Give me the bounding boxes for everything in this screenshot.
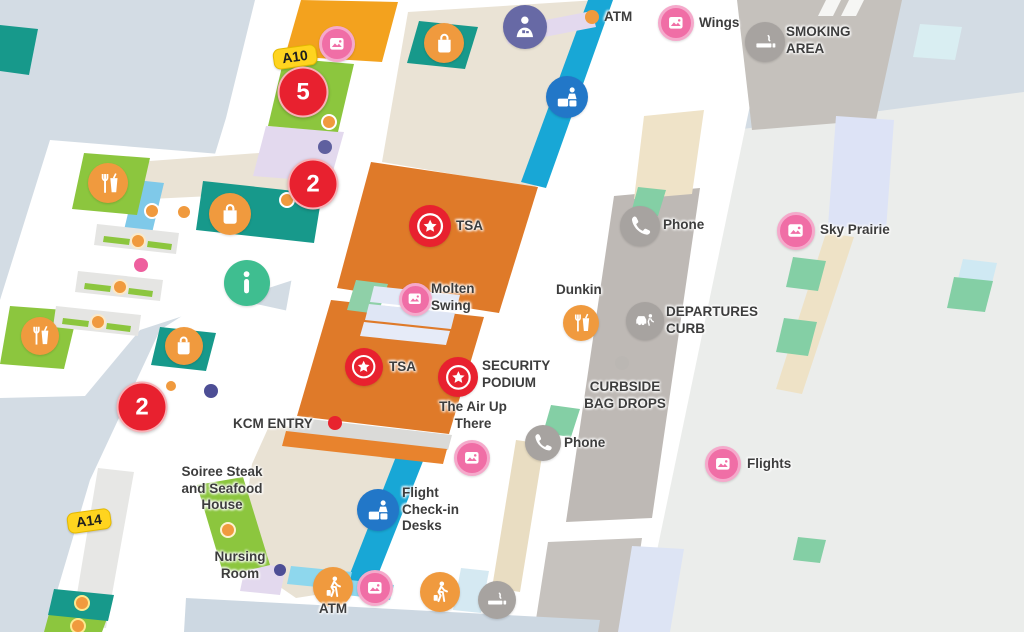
- art-photo-icon[interactable]: [319, 26, 355, 62]
- map-dot: [318, 140, 332, 154]
- map-dot: [585, 10, 599, 24]
- map-label-atm-bottom: ATM: [319, 601, 347, 618]
- tsa-checkpoint-icon[interactable]: [438, 357, 478, 397]
- tsa-checkpoint-icon[interactable]: [345, 348, 383, 386]
- map-label-flight-check-in-desks: FlightCheck-inDesks: [402, 485, 459, 535]
- poi-count-badge[interactable]: 2: [288, 159, 339, 210]
- map-label-atm-top: ATM: [604, 9, 632, 26]
- map-dot: [164, 379, 178, 393]
- map-dot: [134, 258, 148, 272]
- map-label-kcm-entry: KCM ENTRY: [233, 416, 313, 433]
- dining-icon[interactable]: [88, 163, 128, 203]
- map-label-nursing-room: NursingRoom: [214, 549, 265, 582]
- smoking-icon[interactable]: [478, 581, 516, 619]
- map-dot: [144, 203, 160, 219]
- poi-count-badge[interactable]: 2: [117, 382, 168, 433]
- map-dot: [204, 384, 218, 398]
- map-dot: [90, 314, 106, 330]
- phone-icon[interactable]: [620, 206, 660, 246]
- map-dot: [112, 279, 128, 295]
- map-label-smoking-area: SMOKINGAREA: [786, 24, 851, 57]
- art-photo-icon[interactable]: [454, 440, 490, 476]
- shopping-icon[interactable]: [424, 23, 464, 63]
- map-dot: [70, 618, 86, 632]
- map-label-sky-prairie: Sky Prairie: [820, 222, 890, 239]
- tsa-checkpoint-icon[interactable]: [409, 205, 451, 247]
- map-dot: [130, 233, 146, 249]
- map-label-wings: Wings: [699, 15, 739, 32]
- map-label-phone-upper: Phone: [663, 217, 704, 234]
- map-dot: [274, 564, 286, 576]
- checkin-desk-icon[interactable]: [546, 76, 588, 118]
- map-label-flights: Flights: [747, 456, 791, 473]
- art-photo-icon[interactable]: [705, 446, 741, 482]
- shopping-icon[interactable]: [165, 327, 203, 365]
- phone-icon[interactable]: [525, 425, 561, 461]
- map-dot: [74, 595, 90, 611]
- art-photo-icon[interactable]: [658, 5, 694, 41]
- map-label-tsa-1: TSA: [456, 218, 483, 235]
- map-label-departures-curb: DEPARTURESCURB: [666, 304, 758, 337]
- map-label-security-podium: SECURITYPODIUM: [482, 358, 550, 391]
- map-dot: [176, 204, 192, 220]
- shopping-icon[interactable]: [209, 193, 251, 235]
- map-dot: [321, 114, 337, 130]
- poi-count-badge[interactable]: 5: [278, 67, 329, 118]
- dining-icon[interactable]: [21, 317, 59, 355]
- map-dot: [615, 356, 629, 370]
- map-label-curbside-bag-drops: CURBSIDEBAG DROPS: [584, 379, 666, 412]
- map-label-tsa-2: TSA: [389, 359, 416, 376]
- smoking-icon[interactable]: [745, 22, 785, 62]
- map-label-molten-swing: MoltenSwing: [431, 281, 475, 314]
- map-label-dunkin: Dunkin: [556, 282, 602, 299]
- airport-terminal-map[interactable]: ATMWingsSMOKINGAREASky PrairiePhoneDEPAR…: [0, 0, 1024, 632]
- map-label-phone-lower: Phone: [564, 435, 605, 452]
- departures-curb-icon[interactable]: [626, 302, 664, 340]
- map-dot: [328, 416, 342, 430]
- dining-icon[interactable]: [563, 305, 599, 341]
- checkin-desk-icon[interactable]: [357, 489, 399, 531]
- map-dot: [220, 522, 236, 538]
- passenger-walk-icon[interactable]: [420, 572, 460, 612]
- art-photo-icon[interactable]: [777, 212, 815, 250]
- map-label-soiree-steak: Soiree Steakand SeafoodHouse: [181, 464, 262, 514]
- art-photo-icon[interactable]: [357, 570, 393, 606]
- art-photo-icon[interactable]: [399, 283, 432, 316]
- nursing-room-icon[interactable]: [503, 5, 547, 49]
- information-icon[interactable]: [224, 260, 270, 306]
- map-label-the-air-up-there: The Air UpThere: [439, 399, 507, 432]
